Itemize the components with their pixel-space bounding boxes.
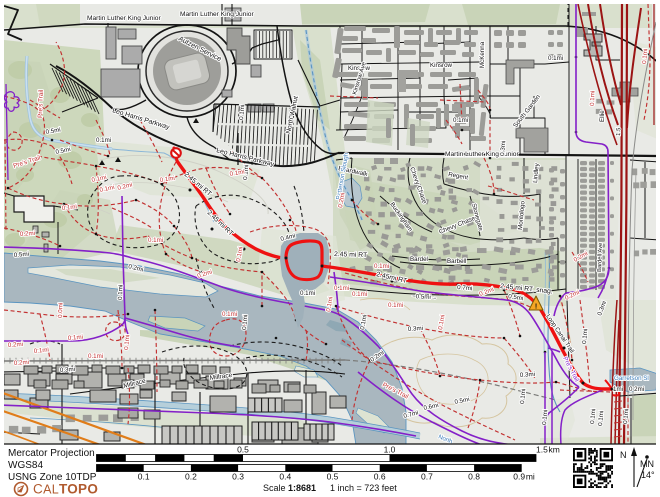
svg-text:0.1mi: 0.1mi [96,137,111,144]
svg-text:0.3mi: 0.3mi [520,371,536,379]
svg-text:McKenna: McKenna [479,41,486,68]
svg-text:0.1mi: 0.1mi [622,408,630,424]
svg-text:0.5: 0.5 [327,472,339,482]
svg-text:0.1mi: 0.1mi [548,55,563,62]
svg-text:N: N [620,450,627,460]
svg-text:0.1mi: 0.1mi [581,328,589,344]
svg-text:0.1mi: 0.1mi [148,237,163,244]
svg-text:0.1mi: 0.1mi [589,91,597,106]
svg-text:Kinsrow: Kinsrow [430,62,453,69]
svg-text:Barbell: Barbell [447,258,466,265]
svg-text:0.1mi: 0.1mi [238,104,246,120]
svg-text:Garretson Sl: Garretson Sl [614,375,649,382]
svg-text:Pre's Trail: Pre's Trail [37,90,45,118]
svg-text:1 inch = 723 feet: 1 inch = 723 feet [330,483,397,493]
svg-text:0.1mi: 0.1mi [123,334,131,350]
svg-text:0.9 mi: 0.9 mi [513,472,535,482]
svg-text:0.1: 0.1 [138,472,150,482]
svg-text:1.5 km: 1.5 km [536,445,560,455]
svg-text:0.1mi: 0.1mi [222,311,237,318]
svg-text:0.1mi: 0.1mi [589,408,597,424]
svg-text:0.7mi: 0.7mi [457,284,473,292]
svg-text:−0.5mi→: −0.5mi→ [412,293,437,301]
svg-text:0.1mi: 0.1mi [374,263,389,270]
svg-text:0.1mi: 0.1mi [88,353,103,360]
svg-text:1.5: 1.5 [616,127,622,136]
svg-text:WGS84: WGS84 [8,460,43,471]
svg-text:0.3mi: 0.3mi [499,140,507,156]
svg-text:1.0: 1.0 [384,445,396,455]
svg-text:0.1mi: 0.1mi [597,410,605,426]
svg-text:0.3mi: 0.3mi [408,325,424,333]
svg-text:1mi: 1mi [613,386,623,393]
svg-text:0.1mi: 0.1mi [541,409,549,425]
svg-text:0.1mi: 0.1mi [519,388,527,404]
svg-text:Martin Luther King Junior: Martin Luther King Junior [180,11,254,18]
svg-text:0.2mi: 0.2mi [20,230,36,238]
svg-text:0.5: 0.5 [237,445,249,455]
svg-text:!: ! [535,304,537,311]
svg-text:Ellie: Ellie [599,110,606,122]
svg-text:CALTOPO: CALTOPO [33,482,98,497]
svg-text:0.1mi: 0.1mi [117,285,125,300]
svg-text:0.3: 0.3 [232,472,244,482]
svg-text:Mercator Projection: Mercator Projection [8,448,95,459]
svg-text:Martin Luther King Junior: Martin Luther King Junior [445,151,519,158]
svg-text:MN: MN [640,459,654,469]
svg-text:0.1mi: 0.1mi [641,48,649,64]
svg-text:0 2mi: 0 2mi [629,386,644,393]
svg-text:14°: 14° [641,470,655,480]
svg-text:Bardel: Bardel [410,256,428,263]
svg-text:0.4: 0.4 [279,472,291,482]
svg-text:0.1mi: 0.1mi [300,290,315,297]
svg-text:0.3mi: 0.3mi [60,366,76,374]
svg-text:0.8: 0.8 [468,472,480,482]
svg-text:0.2mi: 0.2mi [14,359,30,367]
svg-text:0.7: 0.7 [421,472,433,482]
svg-text:Bardell Ave: Bardell Ave [597,243,604,272]
svg-text:0.1mi: 0.1mi [241,314,249,330]
svg-text:Scale 1:8681: Scale 1:8681 [263,483,316,493]
svg-text:Martin Luther King Junior: Martin Luther King Junior [87,15,161,22]
svg-text:0.1mi: 0.1mi [334,285,349,292]
svg-text:0.2: 0.2 [185,472,197,482]
svg-text:0.2mi: 0.2mi [8,341,24,349]
svg-text:0:1mi: 0:1mi [68,334,84,342]
svg-text:0.1mi: 0.1mi [388,302,403,309]
svg-text:2.45 mi RT: 2.45 mi RT [334,251,367,259]
svg-text:0.0mi: 0.0mi [57,303,65,318]
svg-text:0.1mi: 0.1mi [352,291,367,298]
svg-text:0.1mi: 0.1mi [453,117,468,124]
svg-text:0.6: 0.6 [374,472,386,482]
svg-text:0.5mi: 0.5mi [14,251,30,259]
